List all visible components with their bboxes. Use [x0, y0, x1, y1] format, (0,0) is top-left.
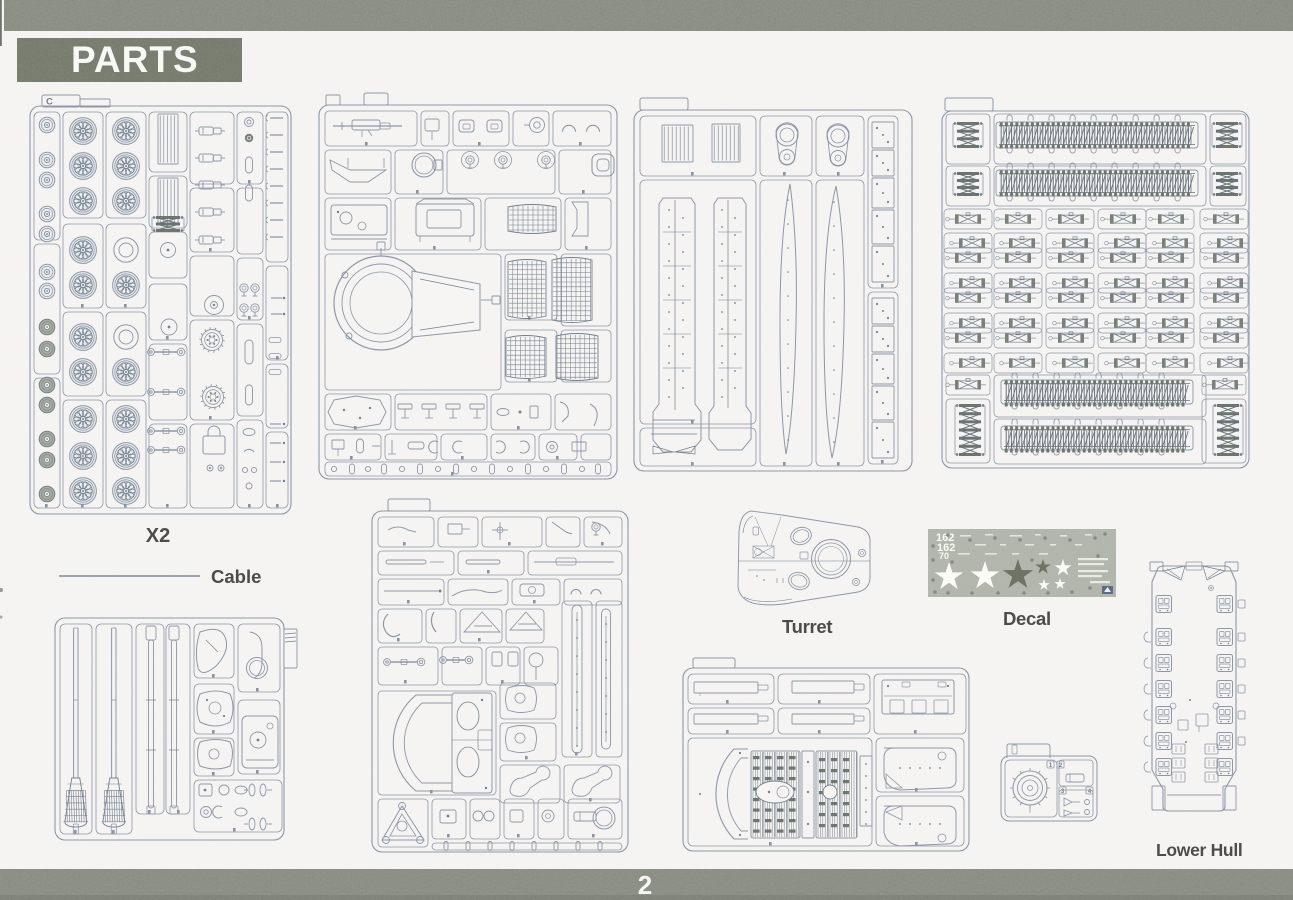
svg-text:X2: X2 — [146, 525, 170, 547]
svg-text:70: 70 — [939, 551, 949, 561]
svg-text:Turret: Turret — [782, 616, 832, 637]
svg-text:Decal: Decal — [1003, 608, 1051, 629]
svg-text:Lower Hull: Lower Hull — [1156, 840, 1242, 860]
svg-text:C: C — [46, 97, 53, 108]
svg-text:PARTS: PARTS — [71, 39, 199, 80]
svg-text:Cable: Cable — [211, 566, 261, 587]
svg-text:2: 2 — [638, 870, 652, 900]
